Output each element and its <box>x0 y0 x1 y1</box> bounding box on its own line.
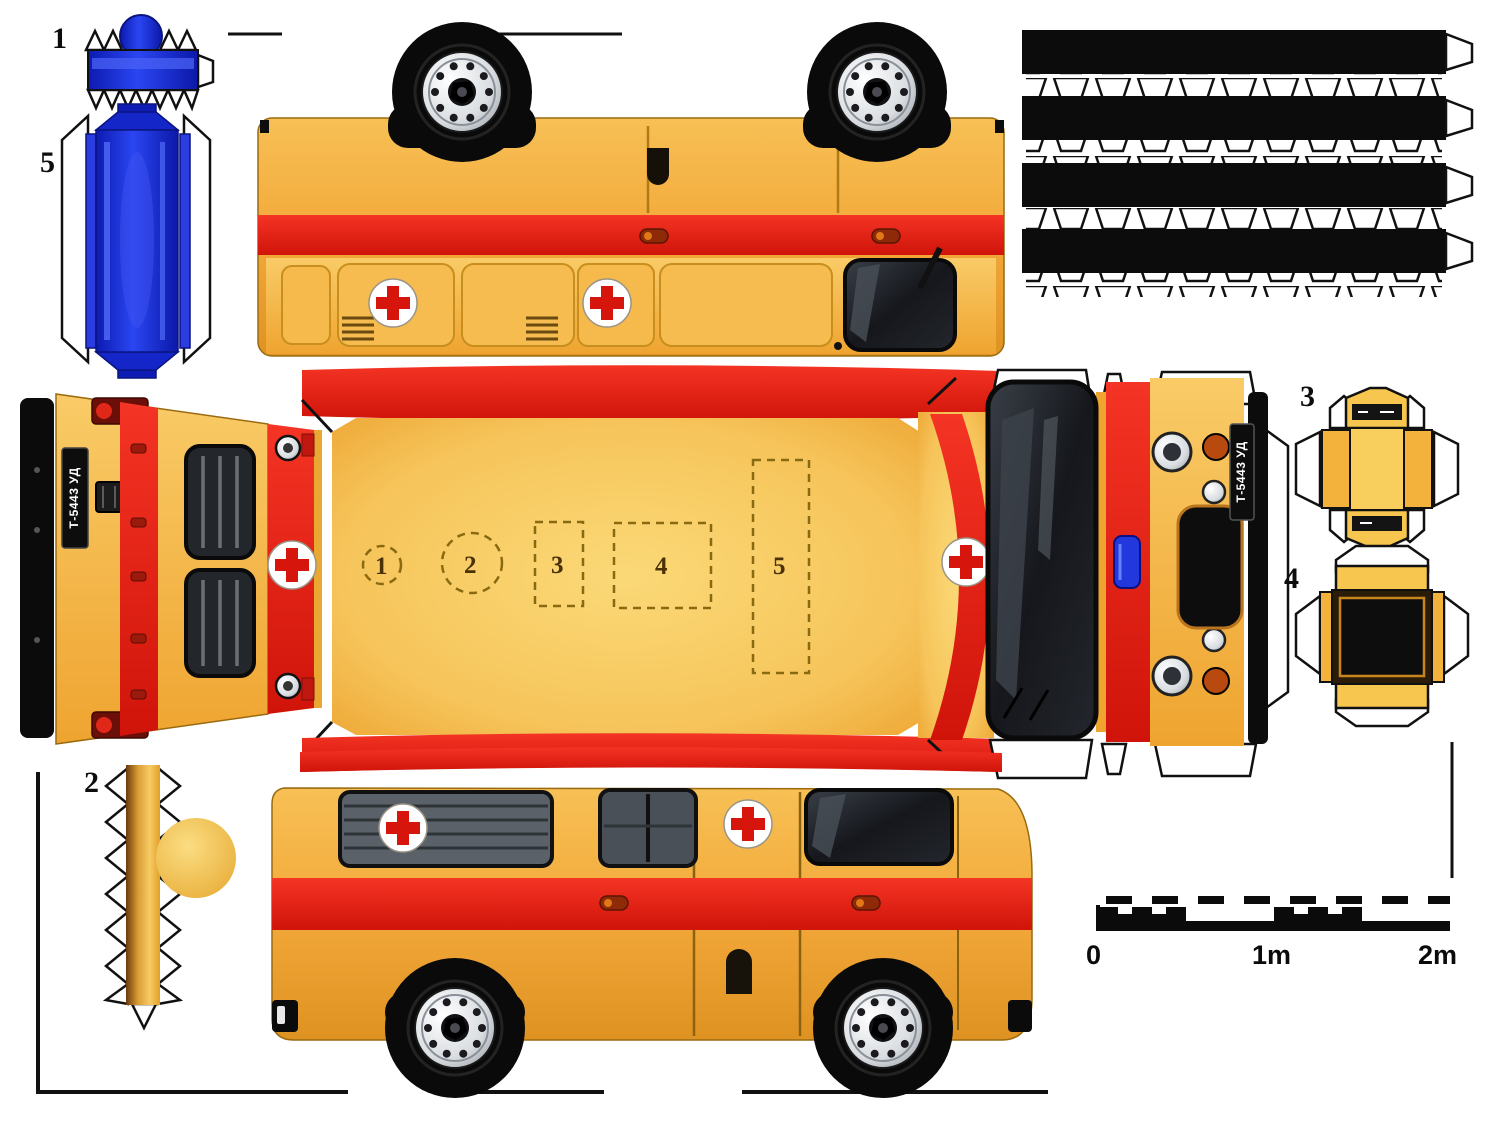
door-handle-recess <box>726 949 752 994</box>
rear-bumper <box>20 398 54 738</box>
pole <box>126 765 160 1005</box>
side-view-bottom <box>272 747 1032 1098</box>
door-handle <box>600 896 628 910</box>
fog-light <box>1203 481 1225 503</box>
side-view-top-inverted <box>258 22 1004 421</box>
roof-mark-number: 1 <box>375 553 388 580</box>
scale-bar: 0 1m 2m <box>1086 900 1457 970</box>
scale-zero: 0 <box>1086 940 1101 970</box>
door-handle-recess <box>647 148 669 185</box>
roof-edge-red-strip <box>300 747 1002 772</box>
part-5-label: 5 <box>40 146 55 179</box>
wheel <box>392 22 532 162</box>
rear-view: Т-5443 УД <box>20 394 322 744</box>
wheel <box>385 958 525 1098</box>
part-2-pole: 2 <box>84 765 236 1028</box>
wheel <box>813 958 953 1098</box>
fog-light <box>1203 629 1225 651</box>
front-license-plate: Т-5443 УД <box>1230 424 1254 520</box>
door-handle <box>640 229 668 243</box>
svg-text:Т-5443 УД: Т-5443 УД <box>67 467 81 528</box>
glue-tab <box>132 1004 156 1028</box>
tread-strip <box>1022 229 1472 297</box>
turn-signal <box>1203 668 1229 694</box>
part-1-beacon-strip: 1 <box>52 15 213 108</box>
tread-strip <box>1022 163 1472 231</box>
roof-mark-number: 3 <box>551 552 564 579</box>
svg-text:Т-5443 УД: Т-5443 УД <box>1234 441 1248 502</box>
grille <box>1178 506 1242 628</box>
turn-signal <box>1203 434 1229 460</box>
roof-mark-number: 5 <box>773 553 786 580</box>
roof-mark-number: 4 <box>655 553 668 580</box>
red-cross <box>379 804 427 852</box>
scale-one-meter: 1m <box>1252 940 1291 970</box>
part-3-box: 3 <box>1296 380 1458 548</box>
scale-two-meter: 2m <box>1418 940 1457 970</box>
rear-license-plate: Т-5443 УД <box>62 448 88 548</box>
beacon-base <box>88 50 198 90</box>
roof-edge-red-band <box>302 365 1000 421</box>
red-cross <box>583 279 631 327</box>
papercraft-sheet: 1 5 <box>0 0 1492 1130</box>
part-4-label: 4 <box>1284 562 1299 595</box>
red-cross <box>724 800 772 848</box>
part-5-blue-box: 5 <box>40 104 210 378</box>
red-cross <box>942 538 990 586</box>
roof-surface <box>332 418 920 735</box>
rear-side-window <box>340 792 552 866</box>
door-handle <box>852 896 880 910</box>
blue-beacon <box>1114 536 1140 588</box>
red-stripe <box>272 878 1032 930</box>
front-view: Т-5443 УД <box>918 370 1288 778</box>
part-3-label: 3 <box>1300 380 1315 413</box>
tread-strip <box>1022 96 1472 164</box>
roof-mark-number: 2 <box>464 552 477 579</box>
rear-step <box>96 482 124 512</box>
box-face <box>1350 428 1404 510</box>
ball <box>156 818 236 898</box>
tread-strip <box>1022 30 1472 98</box>
glue-tab <box>62 116 88 362</box>
door-handle <box>872 229 900 243</box>
part-4-box: 4 <box>1284 546 1468 726</box>
tire-tread-strips <box>1022 30 1472 297</box>
wheel <box>807 22 947 162</box>
part-2-label: 2 <box>84 766 99 799</box>
roof-panel: 1 2 3 4 5 <box>302 400 1000 772</box>
red-cross <box>268 541 316 589</box>
part-1-label: 1 <box>52 22 67 55</box>
glue-tab <box>198 55 213 87</box>
red-cross <box>369 279 417 327</box>
